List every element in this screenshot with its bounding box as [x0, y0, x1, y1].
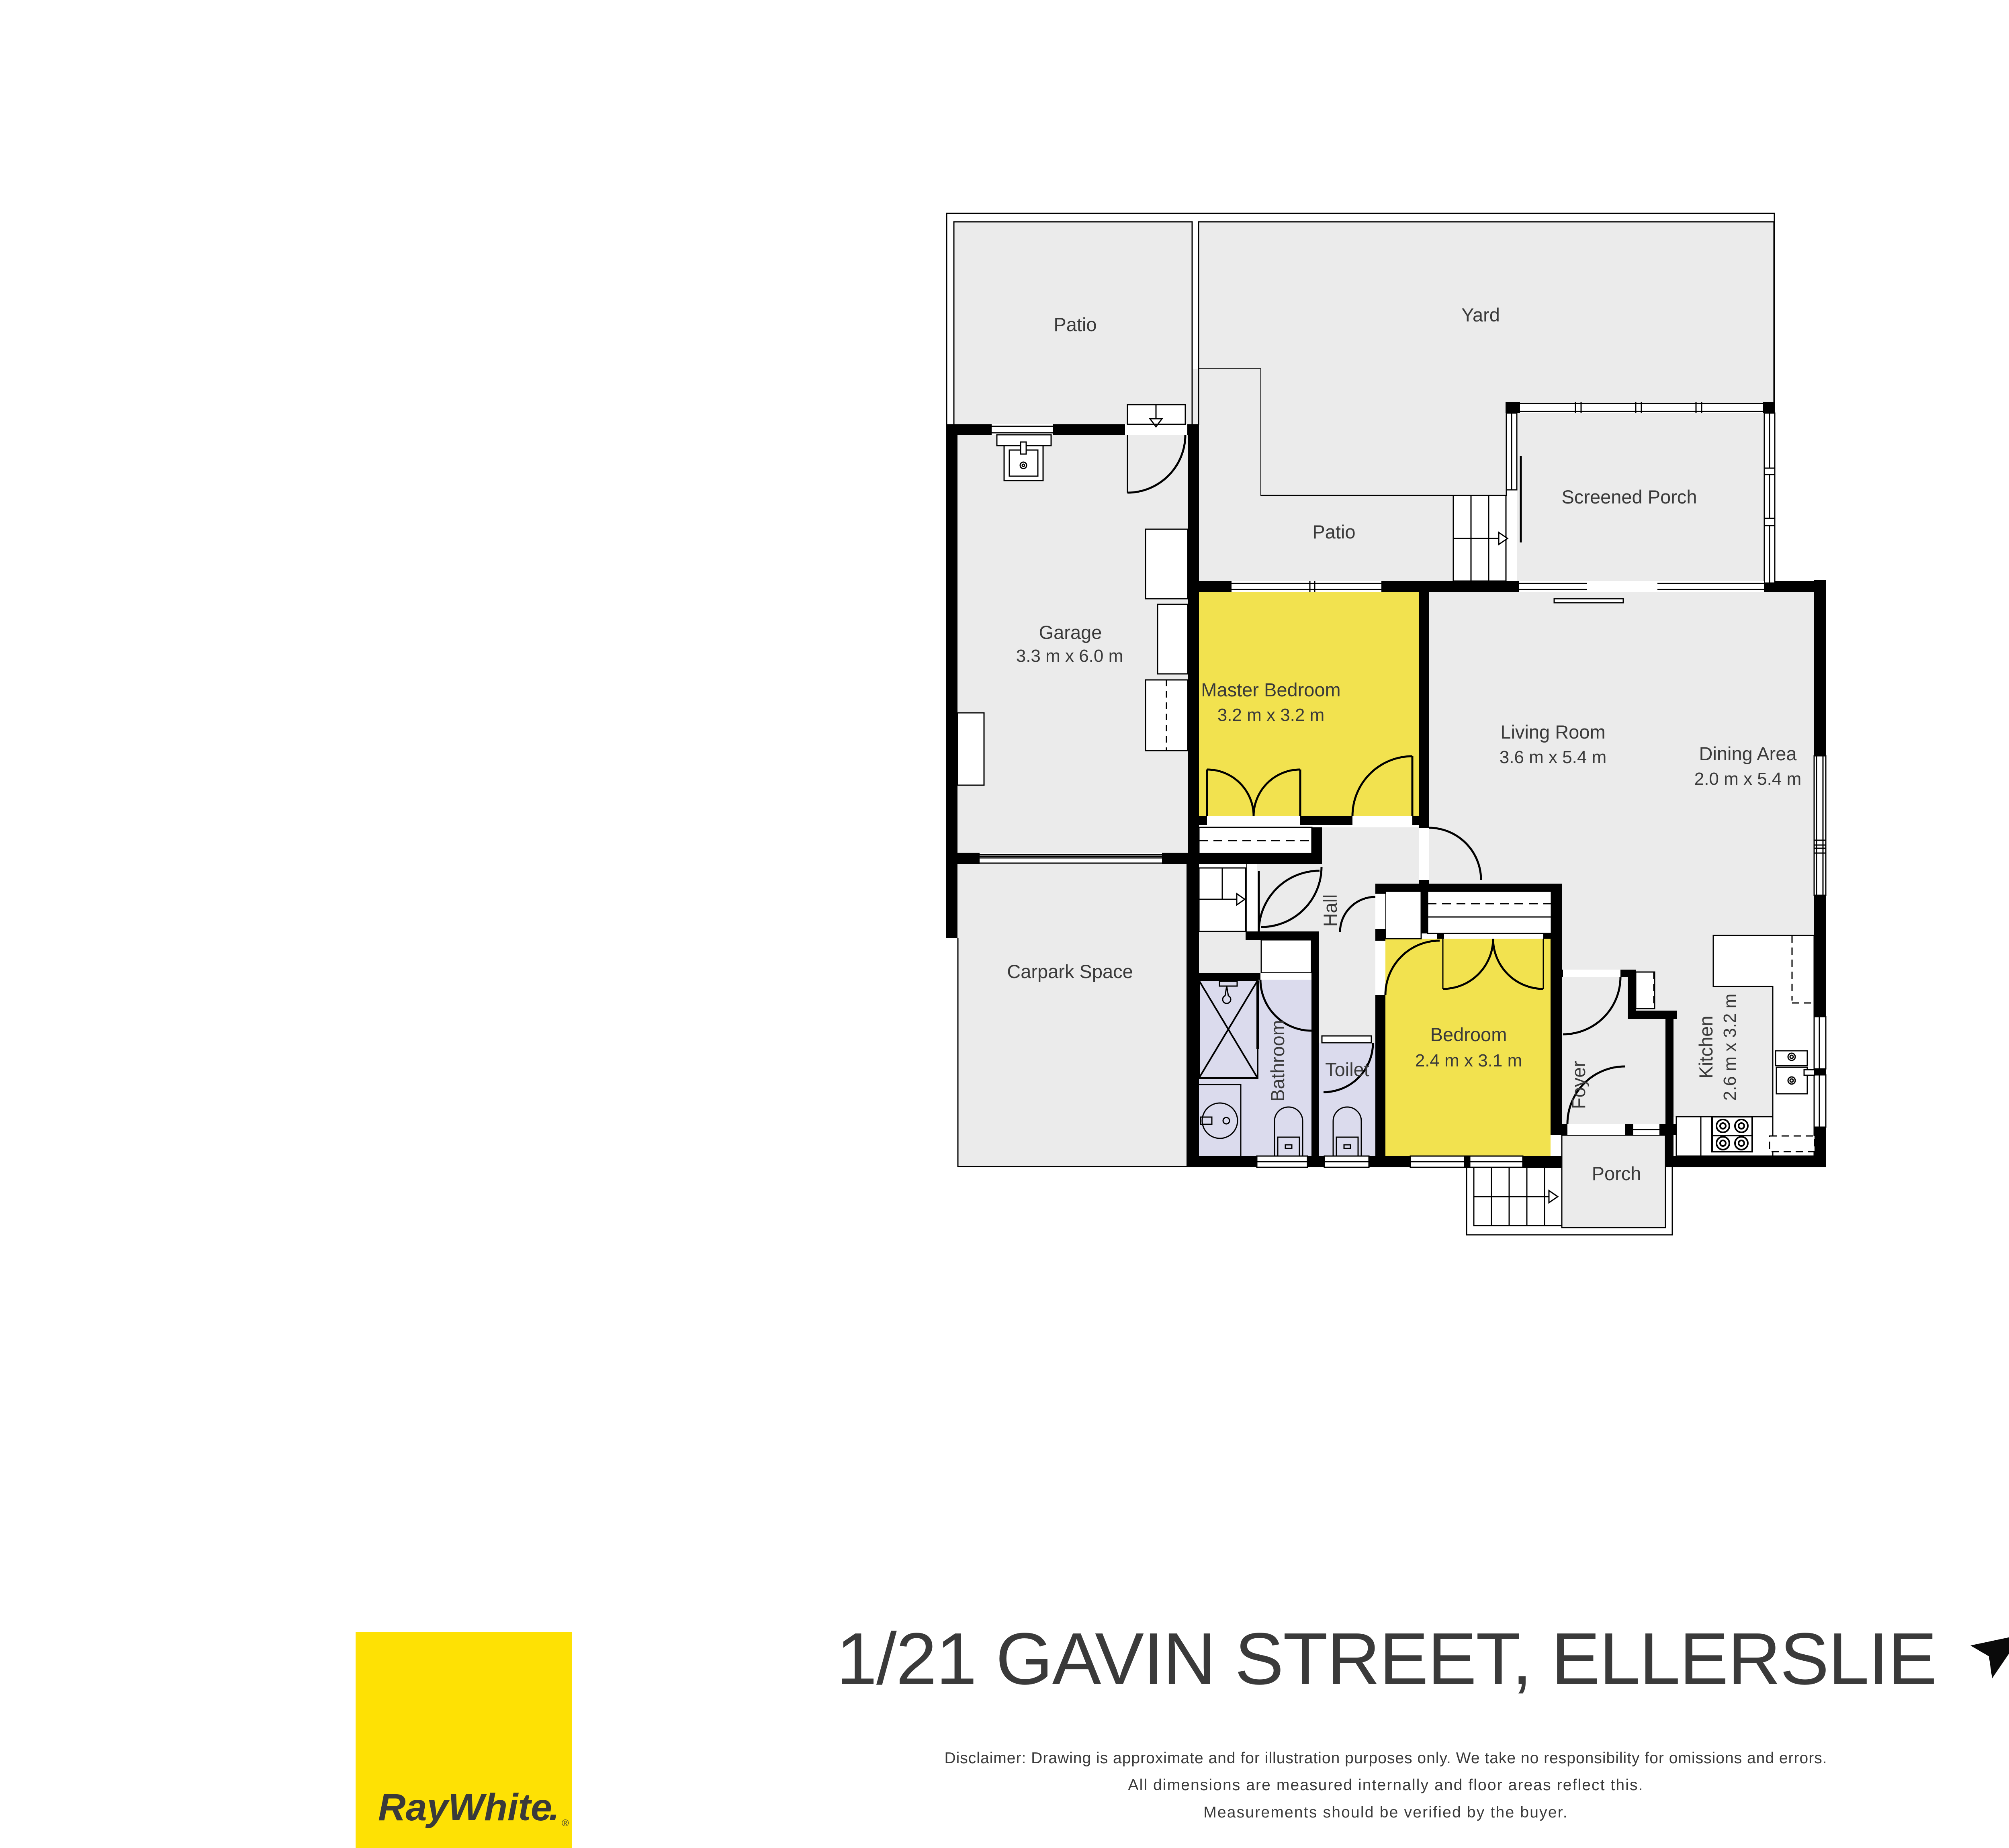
svg-text:Toilet: Toilet: [1325, 1059, 1369, 1080]
svg-text:3.3 m x 6.0 m: 3.3 m x 6.0 m: [1016, 646, 1123, 666]
svg-text:Master Bedroom: Master Bedroom: [1201, 679, 1340, 700]
svg-text:Dining Area: Dining Area: [1699, 743, 1797, 764]
svg-text:Patio: Patio: [1312, 521, 1355, 542]
svg-text:2.0 m x 5.4 m: 2.0 m x 5.4 m: [1694, 769, 1802, 789]
svg-text:Bathroom: Bathroom: [1267, 1020, 1288, 1102]
svg-text:Disclaimer: Drawing is approxi: Disclaimer: Drawing is approximate and f…: [944, 1750, 1827, 1767]
svg-text:Bedroom: Bedroom: [1430, 1024, 1507, 1045]
svg-text:Foyer: Foyer: [1568, 1061, 1589, 1109]
svg-text:1/21 GAVIN STREET, ELLERSLIE: 1/21 GAVIN STREET, ELLERSLIE: [836, 1617, 1936, 1700]
svg-text:Patio: Patio: [1054, 314, 1097, 335]
svg-text:3.6 m x 5.4 m: 3.6 m x 5.4 m: [1500, 747, 1607, 767]
svg-text:2.6 m x 3.2 m: 2.6 m x 3.2 m: [1720, 994, 1740, 1101]
svg-text:Kitchen: Kitchen: [1695, 1016, 1716, 1079]
svg-text:Garage: Garage: [1039, 622, 1102, 643]
svg-text:®: ®: [562, 1818, 569, 1829]
svg-text:3.2 m x 3.2 m: 3.2 m x 3.2 m: [1217, 705, 1325, 725]
svg-text:Porch: Porch: [1592, 1163, 1641, 1184]
svg-text:Yard: Yard: [1461, 304, 1500, 325]
svg-text:Carpark Space: Carpark Space: [1007, 961, 1133, 982]
svg-text:Living Room: Living Room: [1500, 721, 1605, 743]
svg-text:Screened Porch: Screened Porch: [1561, 486, 1697, 508]
svg-text:All dimensions are measured in: All dimensions are measured internally a…: [1128, 1776, 1643, 1794]
svg-text:.: .: [549, 1786, 559, 1829]
svg-text:2.4 m x 3.1 m: 2.4 m x 3.1 m: [1415, 1051, 1522, 1070]
svg-text:RayWhite: RayWhite: [378, 1786, 552, 1829]
svg-text:Hall: Hall: [1320, 894, 1341, 927]
svg-text:Measurements should be verifie: Measurements should be verified by the b…: [1203, 1804, 1568, 1821]
